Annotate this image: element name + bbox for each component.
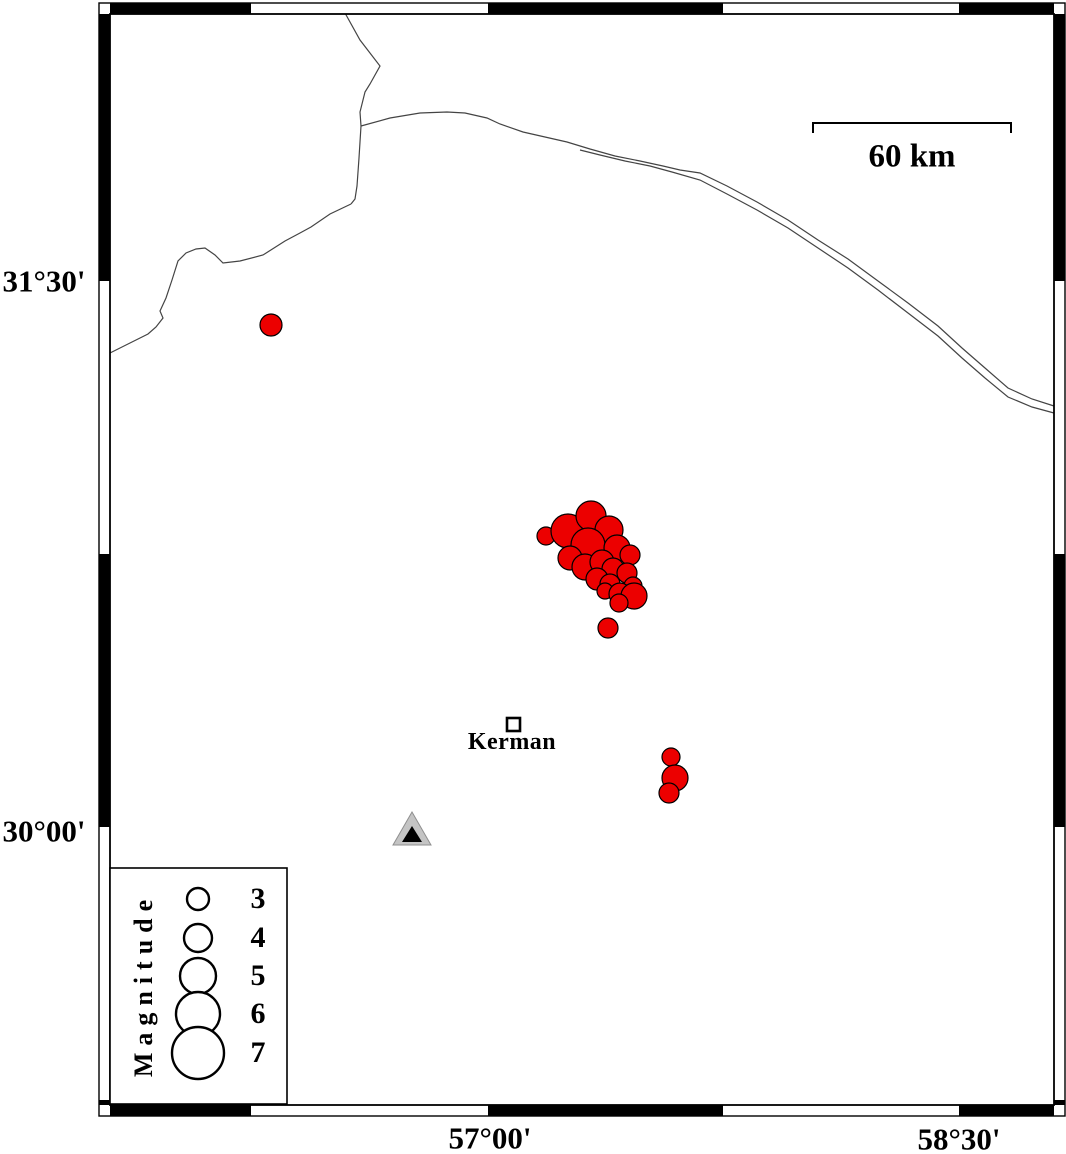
frame-tick-left xyxy=(99,554,110,827)
frame-tick-left xyxy=(99,14,110,281)
frame-tick-bottom xyxy=(959,1105,1054,1116)
road-east-lower xyxy=(580,150,1054,413)
frame-tick-top xyxy=(110,3,251,14)
lat-label-30-00: 30°00' xyxy=(2,816,85,847)
frame-tick-top xyxy=(488,3,723,14)
earthquake-marker xyxy=(659,783,679,803)
legend-magnitude-label-5: 5 xyxy=(251,961,266,991)
earthquake-marker xyxy=(620,545,640,565)
earthquake-marker xyxy=(610,594,628,612)
frame-tick-left xyxy=(99,1100,110,1105)
legend-magnitude-label-3: 3 xyxy=(251,884,266,914)
legend-circle-m4 xyxy=(184,924,212,952)
frame-tick-right xyxy=(1054,14,1065,281)
frame-tick-bottom xyxy=(488,1105,723,1116)
seismicity-map-figure: 31°30' 30°00' 57°00' 58°30' 60 km Kerman… xyxy=(0,0,1066,1154)
lon-label-57-00: 57°00' xyxy=(448,1123,531,1154)
earthquake-marker xyxy=(260,314,282,336)
frame-tick-bottom xyxy=(110,1105,251,1116)
lon-label-58-30: 58°30' xyxy=(917,1124,1000,1154)
frame-tick-right xyxy=(1054,1100,1065,1105)
legend-circle-m5 xyxy=(180,958,216,994)
earthquake-marker xyxy=(662,748,680,766)
scalebar-label: 60 km xyxy=(868,141,955,174)
earthquake-marker xyxy=(598,618,618,638)
scalebar-bracket xyxy=(813,123,1011,133)
city-label: Kerman xyxy=(468,730,556,754)
legend-magnitude-label-7: 7 xyxy=(251,1038,266,1068)
frame-tick-top xyxy=(959,3,1054,14)
legend-magnitude-label-4: 4 xyxy=(251,923,266,953)
road-west xyxy=(110,204,351,353)
road-north xyxy=(345,13,380,204)
frame-tick-right xyxy=(1054,554,1065,827)
legend-circle-m3 xyxy=(187,888,209,910)
legend-circle-m7 xyxy=(172,1027,224,1079)
legend-title: Magnitude xyxy=(131,893,157,1077)
legend-magnitude-label-6: 6 xyxy=(251,999,266,1029)
lat-label-31-30: 31°30' xyxy=(2,266,85,297)
